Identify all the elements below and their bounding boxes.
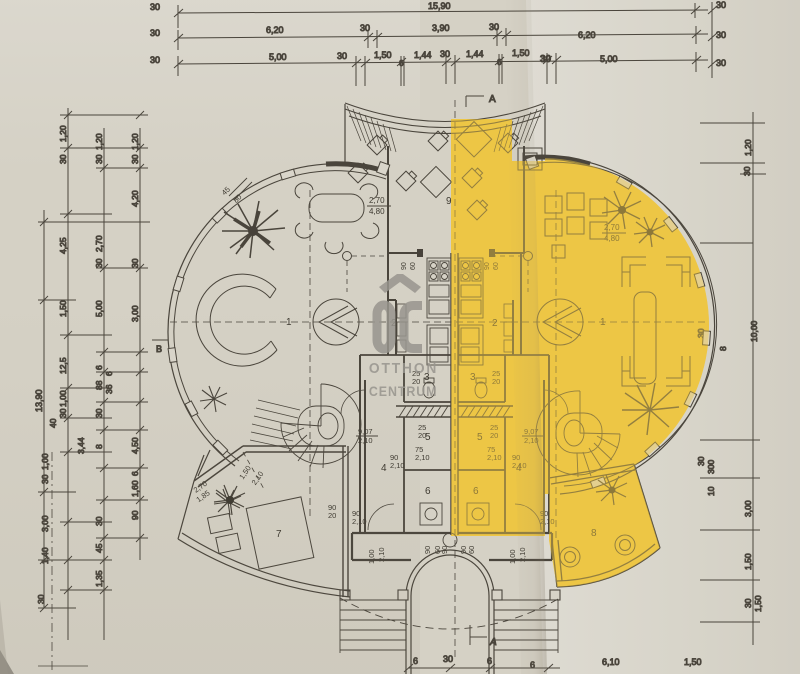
svg-text:4,20: 4,20: [130, 190, 140, 207]
svg-text:A: A: [489, 94, 496, 105]
svg-text:6,20: 6,20: [578, 30, 596, 40]
svg-text:30: 30: [742, 166, 752, 176]
svg-text:4,25: 4,25: [58, 237, 68, 254]
svg-text:30: 30: [337, 51, 347, 61]
svg-text:15,90: 15,90: [428, 1, 451, 11]
svg-text:60: 60: [467, 546, 476, 554]
svg-text:2,70: 2,70: [369, 196, 385, 205]
svg-text:10,00: 10,00: [749, 320, 759, 342]
svg-text:CENTRUM: CENTRUM: [369, 384, 438, 400]
svg-text:30: 30: [696, 456, 706, 466]
svg-text:30: 30: [94, 258, 104, 268]
svg-text:30: 30: [443, 654, 453, 664]
svg-text:30: 30: [360, 23, 370, 33]
svg-text:30: 30: [130, 258, 140, 268]
svg-text:1,20: 1,20: [94, 133, 104, 150]
svg-text:1,50: 1,50: [684, 657, 702, 667]
svg-text:90: 90: [423, 546, 432, 554]
svg-text:1,50: 1,50: [743, 553, 753, 570]
svg-text:30: 30: [716, 58, 726, 68]
svg-text:6: 6: [399, 59, 404, 68]
svg-text:1,00: 1,00: [508, 549, 517, 564]
svg-text:6,20: 6,20: [266, 25, 284, 35]
svg-text:30: 30: [489, 22, 499, 32]
svg-text:30: 30: [130, 154, 140, 164]
svg-text:30: 30: [150, 2, 160, 12]
svg-text:1,50: 1,50: [374, 50, 392, 60]
svg-text:30: 30: [150, 28, 160, 38]
svg-text:A: A: [489, 637, 497, 648]
svg-text:3,00: 3,00: [743, 500, 753, 517]
svg-text:1,20: 1,20: [743, 139, 753, 156]
svg-text:1,44: 1,44: [414, 50, 432, 60]
svg-text:30: 30: [716, 30, 726, 40]
svg-text:6: 6: [425, 486, 431, 497]
svg-text:30: 30: [440, 49, 450, 59]
svg-text:5,00: 5,00: [600, 54, 618, 64]
svg-text:30: 30: [150, 55, 160, 65]
svg-text:30: 30: [540, 54, 552, 65]
svg-text:10: 10: [706, 486, 716, 496]
svg-text:8: 8: [718, 346, 728, 351]
svg-text:30: 30: [743, 598, 753, 608]
svg-text:5,00: 5,00: [269, 52, 287, 62]
svg-text:OTTHON: OTTHON: [369, 361, 438, 378]
svg-text:30: 30: [94, 154, 104, 164]
svg-text:1,20: 1,20: [130, 133, 140, 150]
svg-text:60: 60: [410, 262, 417, 270]
svg-text:6,10: 6,10: [602, 657, 620, 667]
svg-text:30: 30: [716, 0, 726, 10]
svg-text:3,90: 3,90: [432, 23, 450, 33]
svg-text:1,50: 1,50: [753, 595, 763, 612]
svg-text:90: 90: [401, 262, 408, 270]
svg-text:6: 6: [497, 58, 502, 67]
svg-text:4,80: 4,80: [369, 207, 385, 216]
svg-text:1,20: 1,20: [58, 125, 68, 142]
svg-text:300: 300: [706, 460, 716, 474]
svg-text:30: 30: [58, 154, 68, 164]
svg-text:1,44: 1,44: [466, 49, 484, 59]
svg-text:2,70: 2,70: [94, 235, 104, 252]
